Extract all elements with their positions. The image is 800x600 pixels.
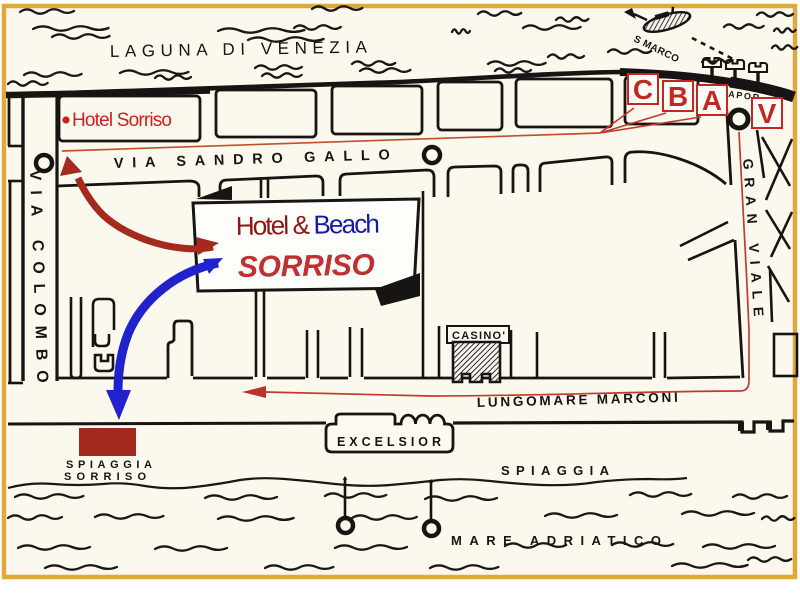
svg-text:B: B (668, 81, 688, 112)
svg-text:C: C (633, 74, 653, 105)
svg-text:A: A (702, 85, 722, 116)
svg-text:EXCELSIOR: EXCELSIOR (337, 435, 441, 449)
svg-text:Hotel & Beach: Hotel & Beach (236, 208, 381, 241)
svg-text:V: V (758, 98, 777, 129)
svg-text:Hotel Sorriso: Hotel Sorriso (72, 110, 172, 131)
svg-text:SORRISO: SORRISO (238, 249, 379, 284)
